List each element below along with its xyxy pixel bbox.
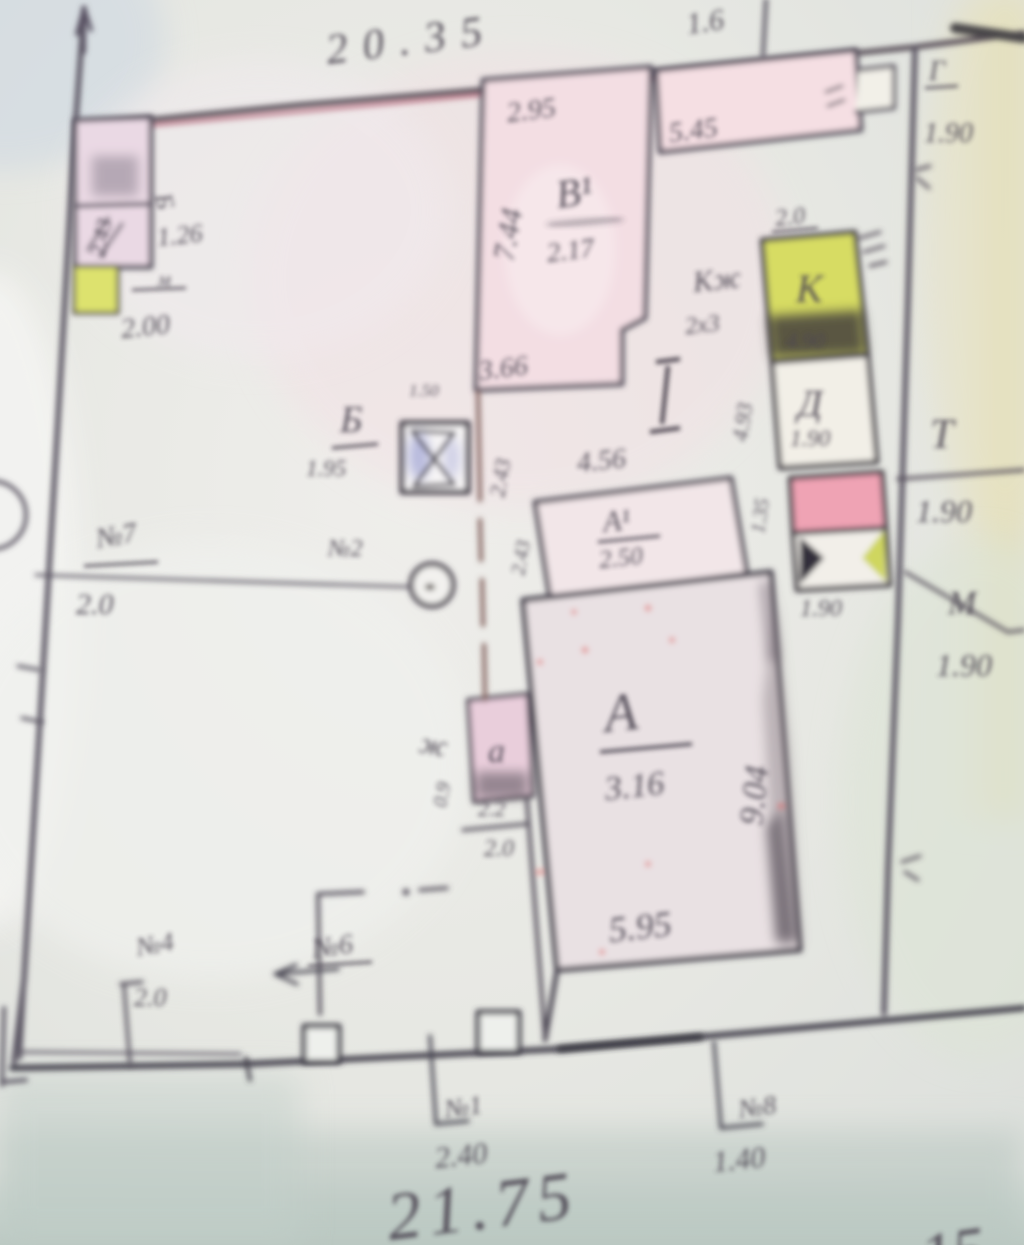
svg-text:2.2: 2.2 [478,796,506,821]
svg-text:4.56: 4.56 [575,443,627,479]
svg-text:2.0: 2.0 [134,983,167,1012]
svg-text:2.50: 2.50 [598,542,645,573]
svg-text:9.04: 9.04 [733,764,776,827]
svg-text:1.6: 1.6 [684,3,726,41]
svg-text:1.90: 1.90 [800,596,842,622]
svg-text:ж: ж [417,726,450,763]
svg-text:2.00: 2.00 [119,309,171,345]
svg-text:3.16: 3.16 [602,765,666,808]
svg-text:№2: №2 [327,536,363,562]
svg-text:3.66: 3.66 [476,350,529,387]
svg-text:№8: №8 [736,1090,778,1124]
svg-text:Б: Б [339,399,362,441]
svg-text:1.90: 1.90 [916,493,972,529]
svg-text:а: а [488,733,505,770]
svg-text:1.90: 1.90 [936,647,992,683]
svg-text:1.26: 1.26 [156,218,204,252]
svg-text:Г: Г [928,56,946,87]
svg-text:Кж: Кж [690,261,742,299]
svg-text:1.50: 1.50 [409,381,439,400]
svg-text:2.0: 2.0 [484,836,514,862]
svg-text:5.95: 5.95 [607,904,674,950]
svg-text:1.90: 1.90 [924,118,973,149]
svg-text:1.95: 1.95 [306,456,346,481]
svg-text:В¹: В¹ [553,167,595,217]
svg-text:1.40: 1.40 [711,1141,767,1179]
svg-text:0.9: 0.9 [429,780,455,808]
svg-text:2х3: 2х3 [684,310,721,339]
svg-text:2.17: 2.17 [545,232,597,268]
svg-text:2.95: 2.95 [505,92,557,129]
svg-text:5.45: 5.45 [667,112,719,149]
svg-text:№6: №6 [310,929,355,965]
svg-text:2.0: 2.0 [76,588,114,621]
svg-text:4.90: 4.90 [786,328,825,353]
svg-text:Д: Д [795,383,824,425]
svg-text:Т: Т [930,412,956,458]
svg-text:А¹: А¹ [599,503,632,539]
svg-text:№1: №1 [442,1090,484,1124]
svg-text:М: М [947,585,978,622]
svg-text:2.0: 2.0 [774,203,807,232]
svg-text:4.93: 4.93 [727,401,757,443]
svg-text:К: К [795,266,825,311]
svg-text:1.90: 1.90 [790,426,831,451]
